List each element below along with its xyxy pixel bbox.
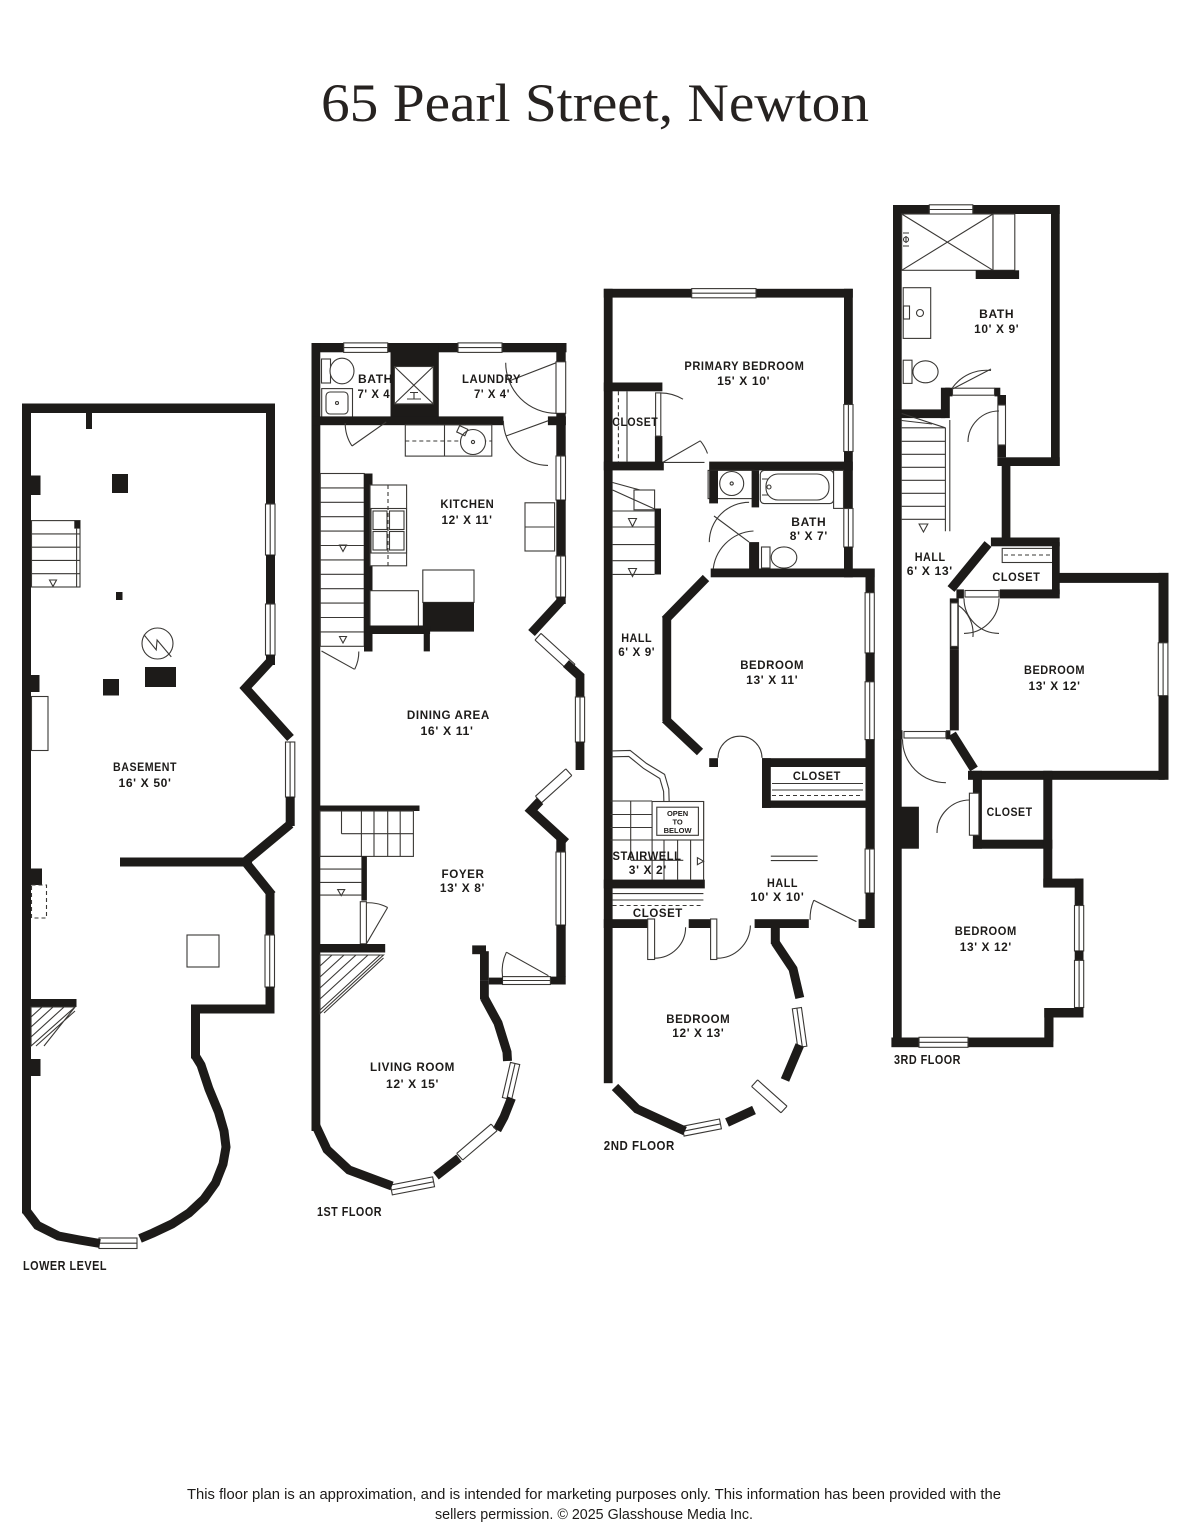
svg-text:BASEMENT: BASEMENT — [113, 761, 177, 774]
svg-text:12' X 13': 12' X 13' — [672, 1027, 724, 1040]
svg-text:STAIRWELL: STAIRWELL — [613, 850, 682, 863]
svg-text:CLOSET: CLOSET — [987, 806, 1033, 819]
svg-text:65 Pearl Street, Newton: 65 Pearl Street, Newton — [321, 73, 869, 133]
svg-text:CLOSET: CLOSET — [612, 416, 658, 429]
svg-text:BELOW: BELOW — [664, 826, 693, 835]
svg-text:12' X 11': 12' X 11' — [442, 514, 493, 527]
svg-text:2ND FLOOR: 2ND FLOOR — [604, 1138, 675, 1153]
svg-text:BEDROOM: BEDROOM — [740, 659, 804, 672]
svg-text:KITCHEN: KITCHEN — [440, 498, 494, 511]
svg-text:BATH: BATH — [358, 373, 393, 386]
svg-text:HALL: HALL — [915, 551, 946, 564]
svg-text:6' X 13': 6' X 13' — [907, 565, 953, 578]
svg-text:16' X 11': 16' X 11' — [421, 725, 474, 738]
svg-text:PRIMARY BEDROOM: PRIMARY BEDROOM — [684, 360, 804, 373]
svg-text:CLOSET: CLOSET — [793, 770, 841, 783]
svg-text:LOWER LEVEL: LOWER LEVEL — [23, 1258, 107, 1273]
svg-text:1ST FLOOR: 1ST FLOOR — [317, 1204, 382, 1219]
svg-text:3' X 2': 3' X 2' — [629, 864, 667, 877]
svg-text:10' X 10': 10' X 10' — [750, 891, 804, 904]
svg-text:15' X 10': 15' X 10' — [717, 375, 770, 388]
svg-text:16' X 50': 16' X 50' — [119, 777, 172, 790]
svg-text:BATH: BATH — [791, 516, 826, 529]
svg-text:FOYER: FOYER — [442, 868, 485, 881]
svg-text:BATH: BATH — [979, 308, 1014, 321]
svg-text:12' X 15': 12' X 15' — [386, 1078, 439, 1091]
svg-text:DINING AREA: DINING AREA — [407, 709, 490, 722]
svg-text:3RD FLOOR: 3RD FLOOR — [894, 1052, 961, 1067]
svg-text:CLOSET: CLOSET — [633, 907, 683, 920]
svg-text:sellers permission. © 2025 Gla: sellers permission. © 2025 Glasshouse Me… — [435, 1507, 753, 1523]
svg-text:10' X 9': 10' X 9' — [974, 323, 1019, 336]
svg-text:This floor plan is an approxim: This floor plan is an approximation, and… — [187, 1487, 1001, 1503]
svg-text:CLOSET: CLOSET — [992, 571, 1040, 584]
svg-text:HALL: HALL — [621, 632, 652, 645]
svg-text:LIVING ROOM: LIVING ROOM — [370, 1061, 455, 1074]
svg-text:13' X 12': 13' X 12' — [1029, 680, 1081, 693]
svg-text:13' X 12': 13' X 12' — [960, 941, 1012, 954]
svg-text:7' X 4': 7' X 4' — [474, 388, 510, 401]
svg-text:LAUNDRY: LAUNDRY — [462, 373, 521, 386]
svg-text:8' X 7': 8' X 7' — [790, 530, 828, 543]
svg-text:6' X 9': 6' X 9' — [618, 646, 655, 659]
svg-text:BEDROOM: BEDROOM — [666, 1013, 730, 1026]
svg-text:13' X 8': 13' X 8' — [440, 882, 485, 895]
svg-text:BEDROOM: BEDROOM — [1024, 664, 1085, 677]
svg-text:13' X 11': 13' X 11' — [746, 674, 798, 687]
svg-text:7' X 4': 7' X 4' — [358, 388, 394, 401]
svg-text:HALL: HALL — [767, 877, 798, 890]
svg-text:BEDROOM: BEDROOM — [955, 925, 1017, 938]
